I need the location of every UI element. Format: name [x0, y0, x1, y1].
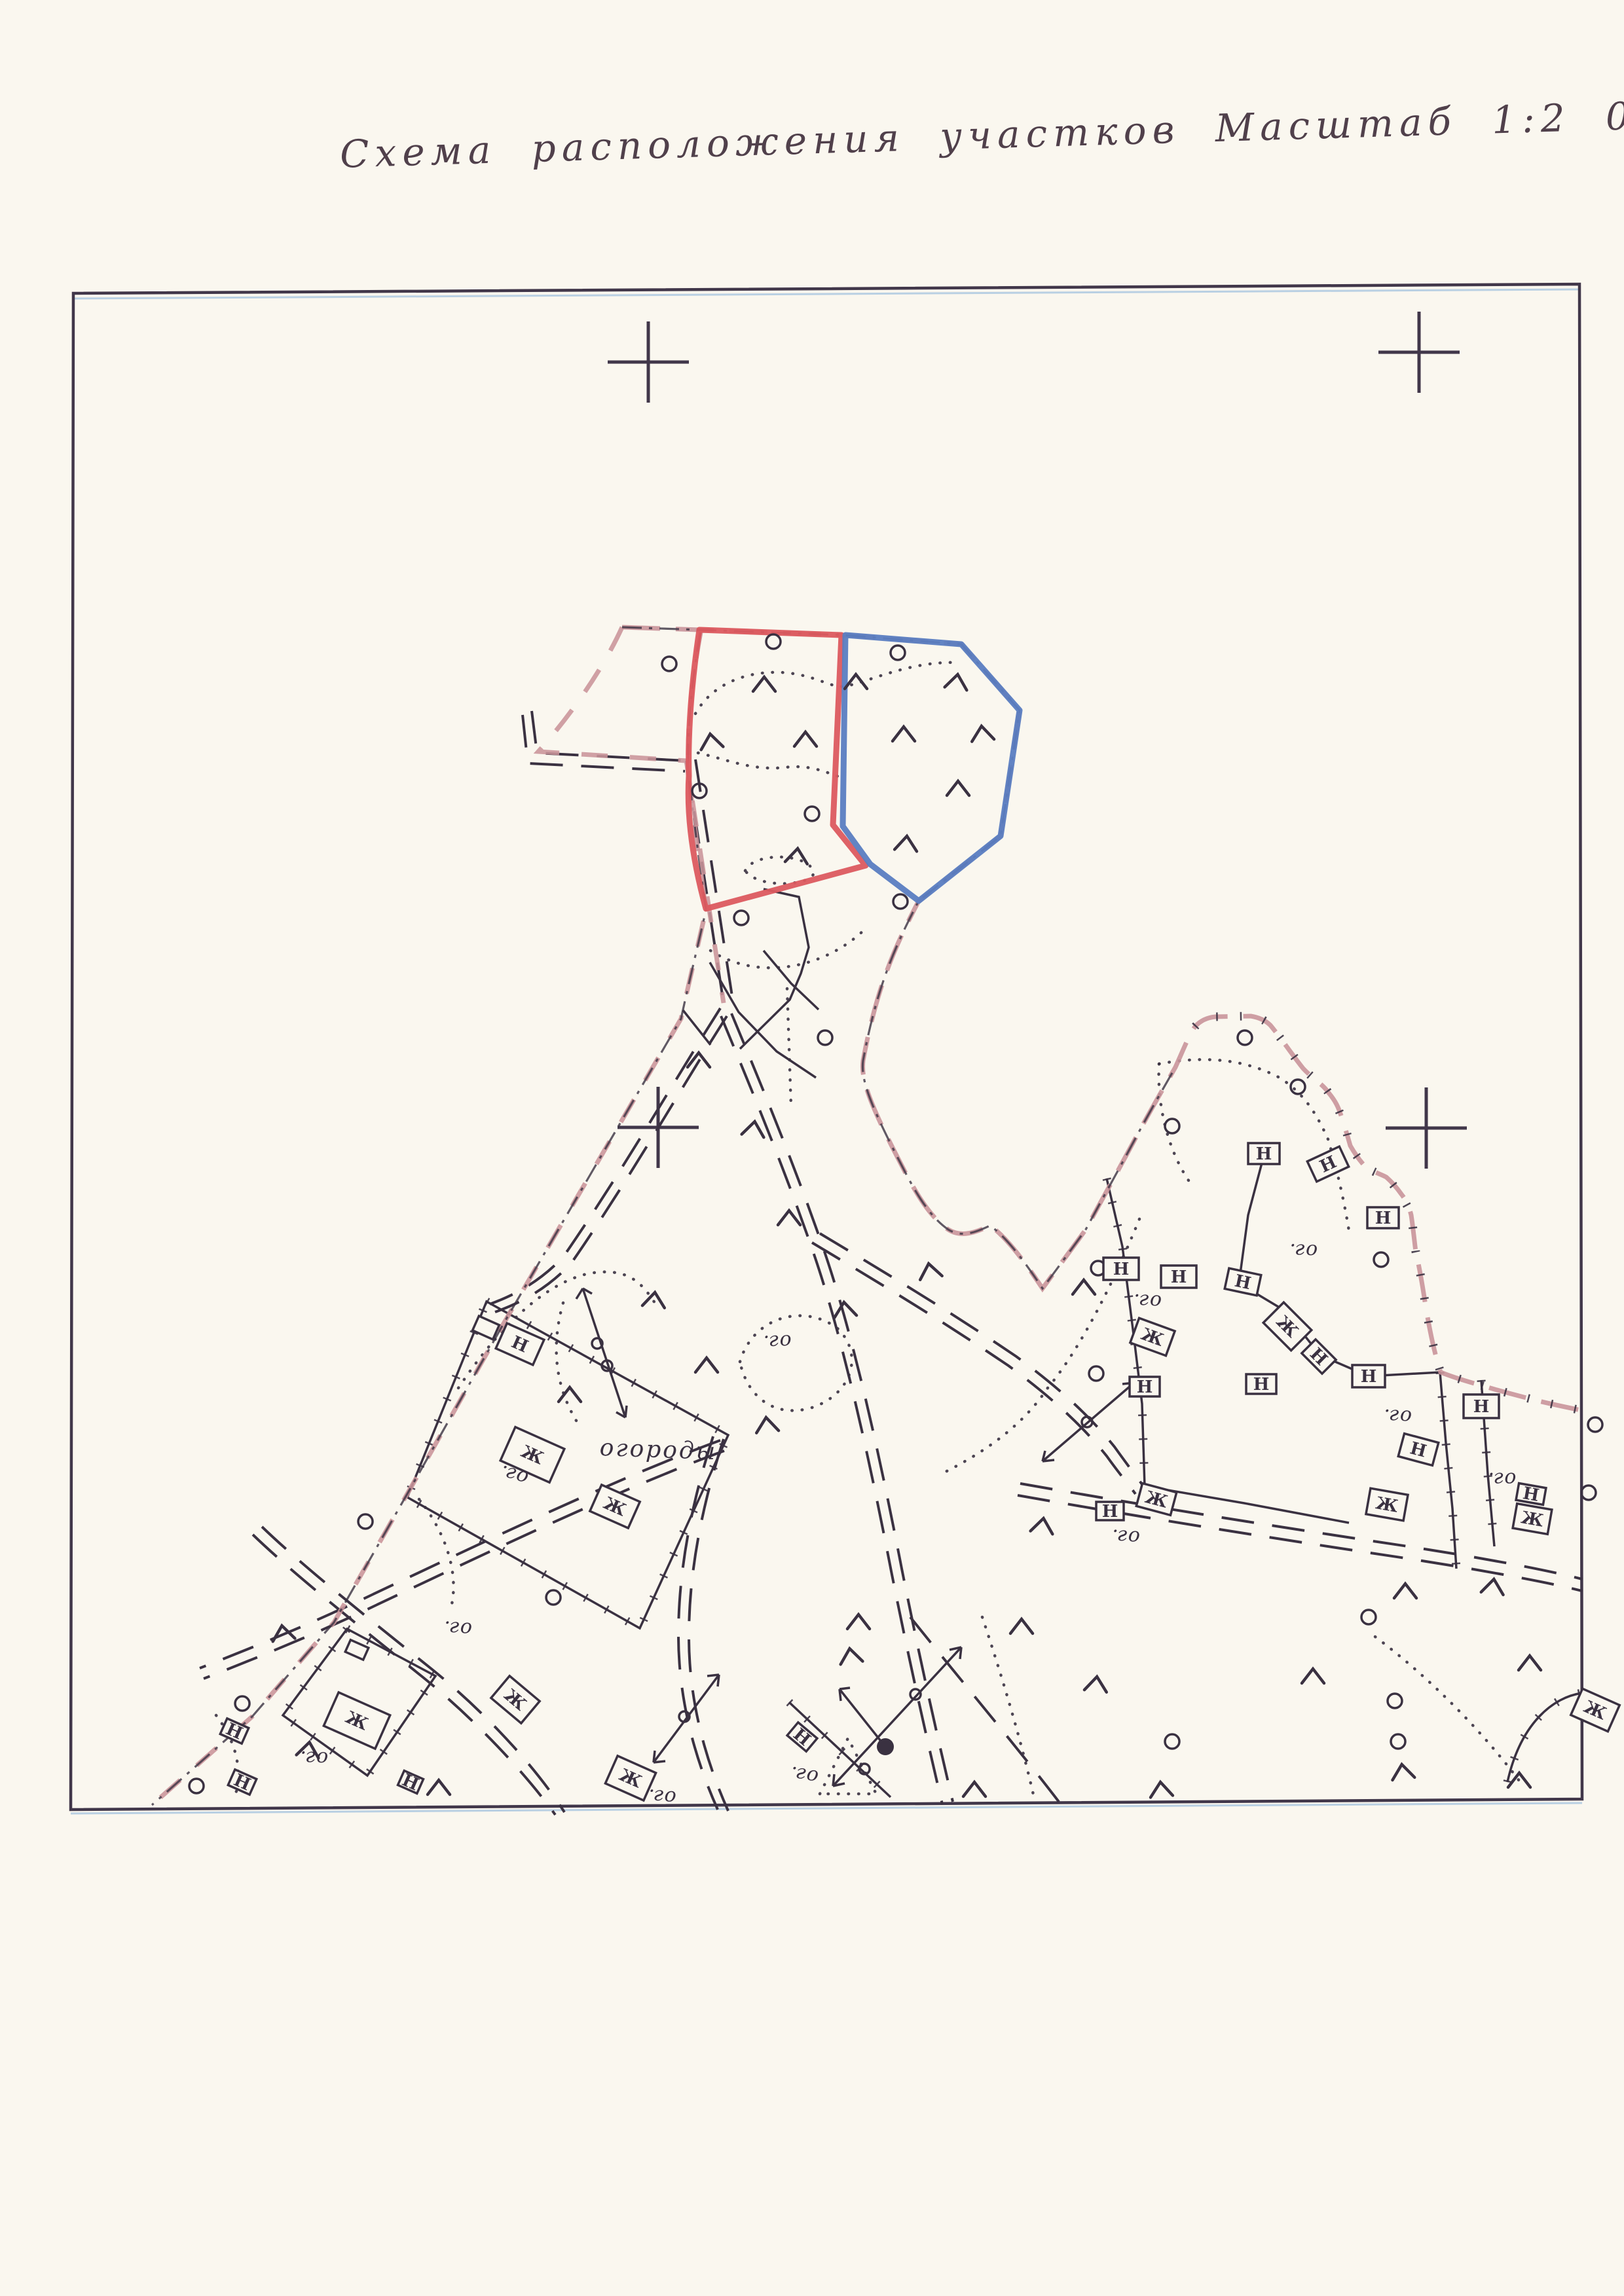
- gardens-area-label: огороды: [599, 1434, 718, 1465]
- building: Ж: [323, 1692, 390, 1749]
- parcel-blue-outline: [843, 635, 1020, 901]
- shrub-caret-icon: [895, 835, 918, 852]
- page-title: Схема расположения участков Масштаб 1:2 …: [339, 92, 1624, 176]
- main-road-south: [721, 1013, 1061, 1804]
- power-pole: [1043, 1383, 1134, 1461]
- building-outline: [345, 1640, 369, 1660]
- tree-circle-icon: [1374, 1252, 1388, 1267]
- shrub-caret-icon: [642, 1291, 666, 1307]
- shrub-caret-icon: [1481, 1578, 1505, 1595]
- garden-label: ог.: [1383, 1404, 1412, 1429]
- shrub-caret-icon: [945, 673, 969, 691]
- tree-circle-icon: [1391, 1734, 1405, 1749]
- tree-circle-icon: [766, 634, 781, 649]
- building-type-label: Н: [1473, 1397, 1490, 1417]
- scanned-map-page: Схема расположения участков Масштаб 1:2 …: [0, 0, 1624, 2296]
- building-type-label: Н: [1361, 1367, 1377, 1387]
- building: Н: [1161, 1266, 1196, 1288]
- building: Ж: [1136, 1484, 1176, 1516]
- garden-label: ог.: [1111, 1525, 1141, 1550]
- building-outline: [473, 1316, 500, 1339]
- shrub-caret-icon: [755, 1416, 779, 1432]
- boundary-long-diagonal: [152, 632, 706, 1805]
- scan-artifact-lines: [71, 289, 1582, 1813]
- tree-circle-icon: [1361, 1610, 1376, 1624]
- shrub-caret-icon: [1073, 1280, 1095, 1294]
- shrub-caret-icon: [1149, 1781, 1173, 1798]
- sw-street-3: [200, 1440, 724, 1679]
- building: Ж: [1130, 1318, 1175, 1355]
- shrub-caret-icon: [1084, 1675, 1108, 1692]
- building: Н: [1130, 1377, 1160, 1397]
- shrub-caret-icon: [1394, 1584, 1416, 1598]
- shrub-caret-icon: [1519, 1656, 1541, 1670]
- building: Н: [227, 1769, 257, 1796]
- shrub-caret-icon: [559, 1387, 581, 1402]
- garden-label: ог.: [647, 1784, 677, 1810]
- village-street: [1018, 1484, 1582, 1591]
- shrub-caret-icon: [271, 1624, 295, 1642]
- tree-circle-icon: [734, 911, 748, 925]
- tree-circle-icon: [1291, 1080, 1305, 1094]
- shrub-caret-icon: [794, 732, 817, 746]
- tree-circle-icon: [1165, 1119, 1179, 1133]
- boundary-parcels-village: [622, 627, 1581, 1410]
- power-line-symbols: [576, 1288, 1134, 1786]
- building-type-label: Н: [1375, 1209, 1392, 1228]
- boundary-road-tail: [538, 627, 724, 1003]
- tree-circle-icon: [893, 894, 908, 909]
- building: Н: [397, 1770, 424, 1796]
- building: Ж: [1366, 1488, 1408, 1520]
- shrub-caret-icon: [847, 1614, 870, 1629]
- building-type-label: Ж: [1374, 1493, 1399, 1516]
- tree-circle-icon: [358, 1514, 373, 1529]
- power-pole: [654, 1675, 719, 1762]
- shrub-caret-icon: [753, 677, 775, 691]
- fences: [283, 889, 1582, 1797]
- shrub-caret-icon: [970, 725, 994, 741]
- shrub-caret-icon: [1010, 1619, 1033, 1633]
- shrub-caret-icon: [699, 733, 724, 750]
- shrub-caret-icon: [947, 781, 969, 795]
- shrub-caret-icon: [428, 1780, 450, 1795]
- building-type-label: Н: [1102, 1502, 1118, 1522]
- shrub-caret-icon: [1031, 1517, 1055, 1535]
- tree-circle-icon: [818, 1030, 832, 1045]
- building: Н: [1248, 1143, 1280, 1164]
- grid-cross: [1378, 312, 1460, 393]
- dotted-contours: [216, 663, 1519, 1800]
- garden-label: ог.: [788, 1761, 820, 1789]
- tree-circle-icon: [1089, 1366, 1103, 1381]
- shrub-caret-icon: [742, 1120, 766, 1138]
- tree-circle-icon: [1238, 1030, 1252, 1045]
- power-pole: [833, 1647, 961, 1786]
- map-frame: [71, 284, 1582, 1810]
- tree-circle-icon: [805, 807, 819, 821]
- building: Ж: [491, 1676, 540, 1723]
- building: Н: [1096, 1502, 1124, 1522]
- building: Н: [1246, 1374, 1276, 1394]
- garden-label: ог.: [443, 1616, 473, 1641]
- shrub-caret-icon: [839, 1647, 863, 1665]
- shrub-caret-icon: [917, 1262, 942, 1280]
- building: Ж: [1263, 1302, 1312, 1351]
- map-canvas: Схема расположения участков Масштаб 1:2 …: [0, 0, 1624, 2296]
- shrub-caret-icon: [785, 847, 809, 864]
- tree-circle-icon: [1388, 1694, 1402, 1708]
- building: Н: [1398, 1434, 1438, 1466]
- road-north-stub: [523, 711, 686, 771]
- shrub-caret-icon: [893, 727, 915, 741]
- building: Н: [1103, 1258, 1139, 1280]
- grid-cross: [608, 321, 689, 403]
- tree-circle-icon: [1588, 1417, 1602, 1432]
- garden-label: ог.: [1488, 1468, 1517, 1491]
- building: Ж: [605, 1756, 655, 1800]
- tree-circle-icon: [235, 1696, 249, 1711]
- shrub-caret-icon: [695, 1358, 718, 1372]
- building: [345, 1640, 369, 1660]
- building: Н: [1307, 1146, 1348, 1182]
- building-type-label: Ж: [1519, 1508, 1545, 1531]
- garden-label: ог.: [300, 1746, 329, 1770]
- tree-circle-icon: [662, 657, 676, 671]
- building: Н: [786, 1722, 817, 1753]
- shrub-caret-icon: [1302, 1669, 1324, 1683]
- building-type-label: Н: [1256, 1144, 1272, 1164]
- building: Н: [1352, 1365, 1385, 1387]
- building-type-label: Н: [1171, 1267, 1187, 1287]
- building-type-label: Н: [1253, 1375, 1270, 1394]
- building: Н: [1301, 1339, 1336, 1374]
- tree-circle-icon: [189, 1779, 204, 1793]
- tree-circle-icon: [546, 1590, 561, 1605]
- gardens-enclosure: [407, 1302, 728, 1628]
- power-pole: [576, 1288, 627, 1417]
- shrub-caret-icon: [778, 1211, 800, 1225]
- building-type-label: Н: [1521, 1484, 1540, 1506]
- tree-circle-icon: [1581, 1485, 1596, 1500]
- corner-plot-fence: [1507, 1693, 1582, 1782]
- building: [473, 1316, 500, 1339]
- building-type-label: Н: [1137, 1377, 1153, 1397]
- shrub-caret-icon: [963, 1782, 986, 1796]
- grid-cross: [1386, 1087, 1467, 1169]
- grid-crosses: [608, 312, 1467, 1169]
- garden-label: ог.: [1289, 1239, 1318, 1262]
- tree-circle-icon: [891, 646, 905, 660]
- garden-label: ог.: [1133, 1289, 1162, 1313]
- sw-street-2: [678, 1436, 728, 1811]
- road-to-gardens: [490, 1008, 727, 1312]
- shrub-caret-icon: [1391, 1763, 1414, 1780]
- garden-label: ог.: [763, 1330, 792, 1353]
- tree-circle-icon: [1165, 1734, 1179, 1749]
- building: Ж: [1513, 1504, 1552, 1535]
- building: Н: [1225, 1268, 1261, 1296]
- building-type-label: Н: [1113, 1260, 1130, 1279]
- building: Ж: [1571, 1688, 1620, 1731]
- building: Н: [1367, 1207, 1399, 1228]
- building: Н: [1464, 1394, 1499, 1418]
- shrub-caret-icon: [845, 674, 867, 689]
